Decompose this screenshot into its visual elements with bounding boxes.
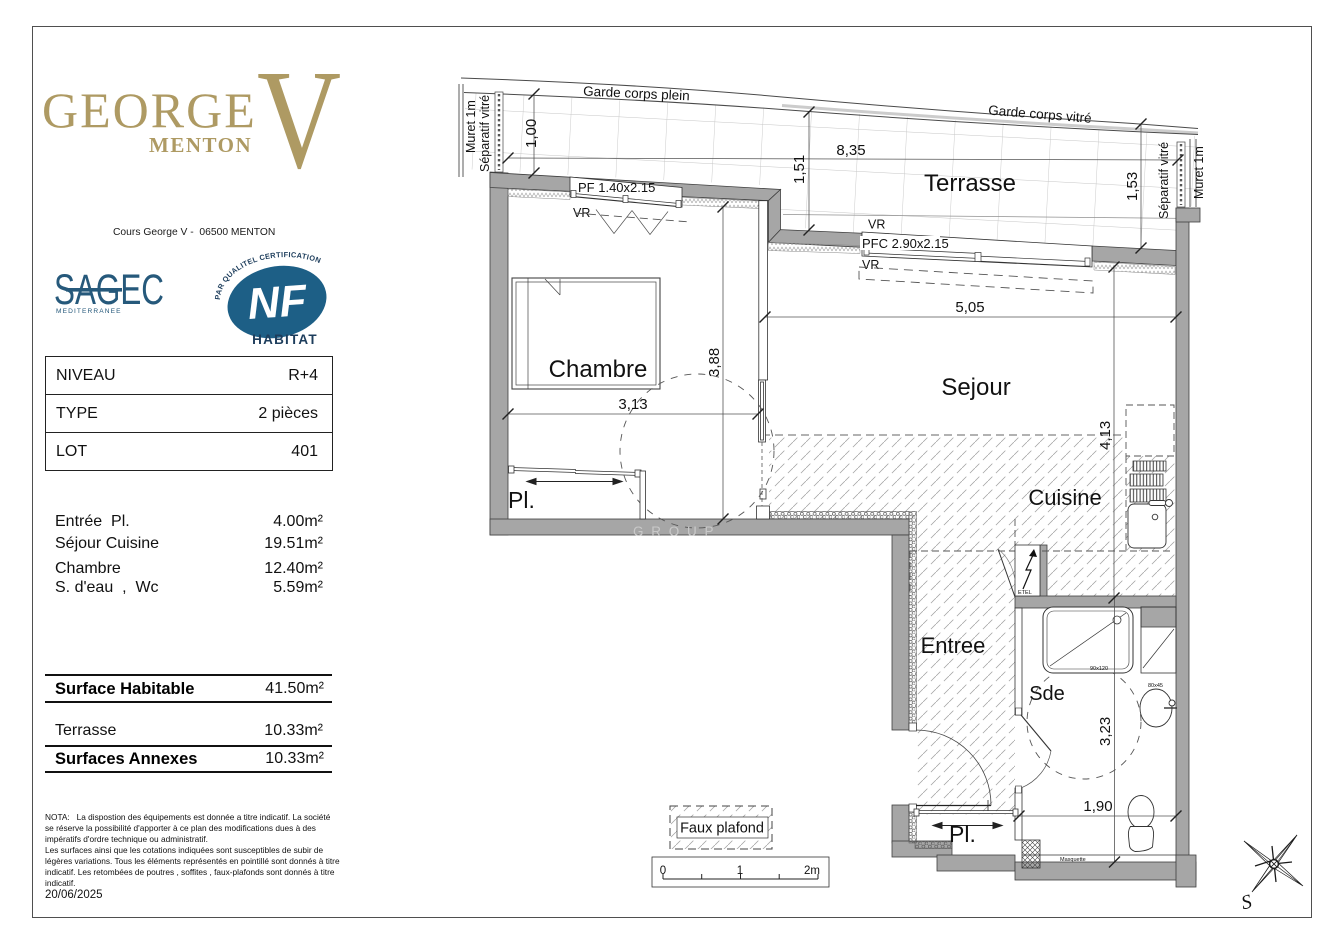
- svg-text:Muret 1m: Muret 1m: [464, 100, 478, 153]
- svg-text:Pl.: Pl.: [508, 487, 535, 513]
- svg-text:ETEL: ETEL: [1018, 590, 1032, 596]
- svg-text:Chambre: Chambre: [549, 356, 648, 383]
- svg-text:2m: 2m: [804, 865, 820, 877]
- svg-text:1,00: 1,00: [523, 119, 540, 148]
- svg-text:Muret 1m: Muret 1m: [1192, 146, 1206, 199]
- svg-text:1,53: 1,53: [1124, 172, 1141, 201]
- svg-text:S: S: [1239, 891, 1254, 915]
- svg-text:5,05: 5,05: [955, 299, 984, 316]
- svg-text:3,88: 3,88: [706, 348, 723, 377]
- svg-text:Sde: Sde: [1029, 683, 1065, 705]
- svg-text:Séparatif vitré: Séparatif vitré: [1157, 142, 1171, 219]
- svg-text:1,90: 1,90: [1083, 798, 1112, 815]
- svg-text:Terrasse: Terrasse: [924, 170, 1016, 197]
- svg-text:Sejour: Sejour: [941, 374, 1010, 401]
- svg-text:Faux plafond: Faux plafond: [680, 821, 764, 837]
- svg-text:90x120: 90x120: [1090, 666, 1108, 672]
- svg-text:3,13: 3,13: [618, 396, 647, 413]
- svg-text:3,23: 3,23: [1097, 717, 1114, 746]
- svg-text:PF 1.40x2.15: PF 1.40x2.15: [578, 180, 655, 195]
- svg-text:1: 1: [737, 865, 743, 877]
- svg-text:VR: VR: [868, 218, 885, 232]
- svg-text:PFC 2.90x2.15: PFC 2.90x2.15: [862, 236, 949, 251]
- svg-text:1,51: 1,51: [791, 155, 808, 184]
- svg-text:0: 0: [660, 865, 666, 877]
- svg-text:80x45: 80x45: [1148, 683, 1163, 689]
- svg-text:Cuisine: Cuisine: [1028, 485, 1101, 510]
- svg-text:Pl.: Pl.: [949, 821, 976, 847]
- svg-text:Entree: Entree: [921, 633, 986, 658]
- svg-text:4,13: 4,13: [1097, 421, 1114, 450]
- svg-text:Séparatif vitré: Séparatif vitré: [478, 95, 492, 172]
- svg-text:G R O U P: G R O U P: [633, 524, 716, 539]
- svg-text:8,35: 8,35: [836, 142, 865, 159]
- svg-text:VR: VR: [862, 258, 879, 272]
- svg-text:Masquette: Masquette: [1060, 857, 1086, 863]
